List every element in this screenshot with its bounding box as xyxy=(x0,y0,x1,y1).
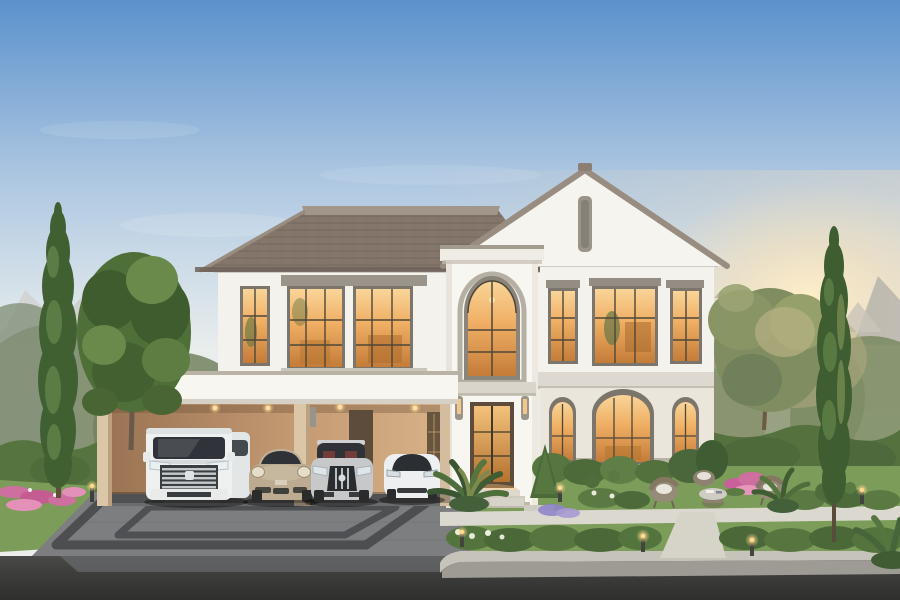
right-window-wide xyxy=(592,286,658,366)
gable-peak-cap xyxy=(578,163,592,171)
big-window-header xyxy=(281,275,427,286)
wheel xyxy=(387,489,396,500)
arched-window-1 xyxy=(549,397,576,462)
rendered-photo xyxy=(0,0,900,600)
right-window-narrow-2 xyxy=(670,288,702,364)
wheel xyxy=(314,490,324,502)
right-window-narrow-1 xyxy=(548,288,578,364)
sportscar-headlight xyxy=(252,467,265,478)
sedan-grille xyxy=(327,466,357,491)
tower-cap xyxy=(440,248,544,261)
van-grille xyxy=(160,465,218,490)
cloud xyxy=(320,165,540,185)
sconce-right xyxy=(521,396,529,420)
crossover xyxy=(379,454,445,505)
wicker-table xyxy=(699,488,727,508)
driveway-apron xyxy=(60,556,468,572)
left-big-window-1 xyxy=(287,286,345,370)
sportscar-headlight xyxy=(298,467,311,478)
wheel xyxy=(252,490,262,502)
left-big-window-2 xyxy=(353,286,413,370)
cloud xyxy=(40,121,200,139)
wheel xyxy=(359,490,369,502)
wicker-chair-back xyxy=(693,470,715,486)
minivan xyxy=(143,428,250,508)
arched-window-2 xyxy=(592,389,654,464)
left-small-window xyxy=(240,286,270,366)
